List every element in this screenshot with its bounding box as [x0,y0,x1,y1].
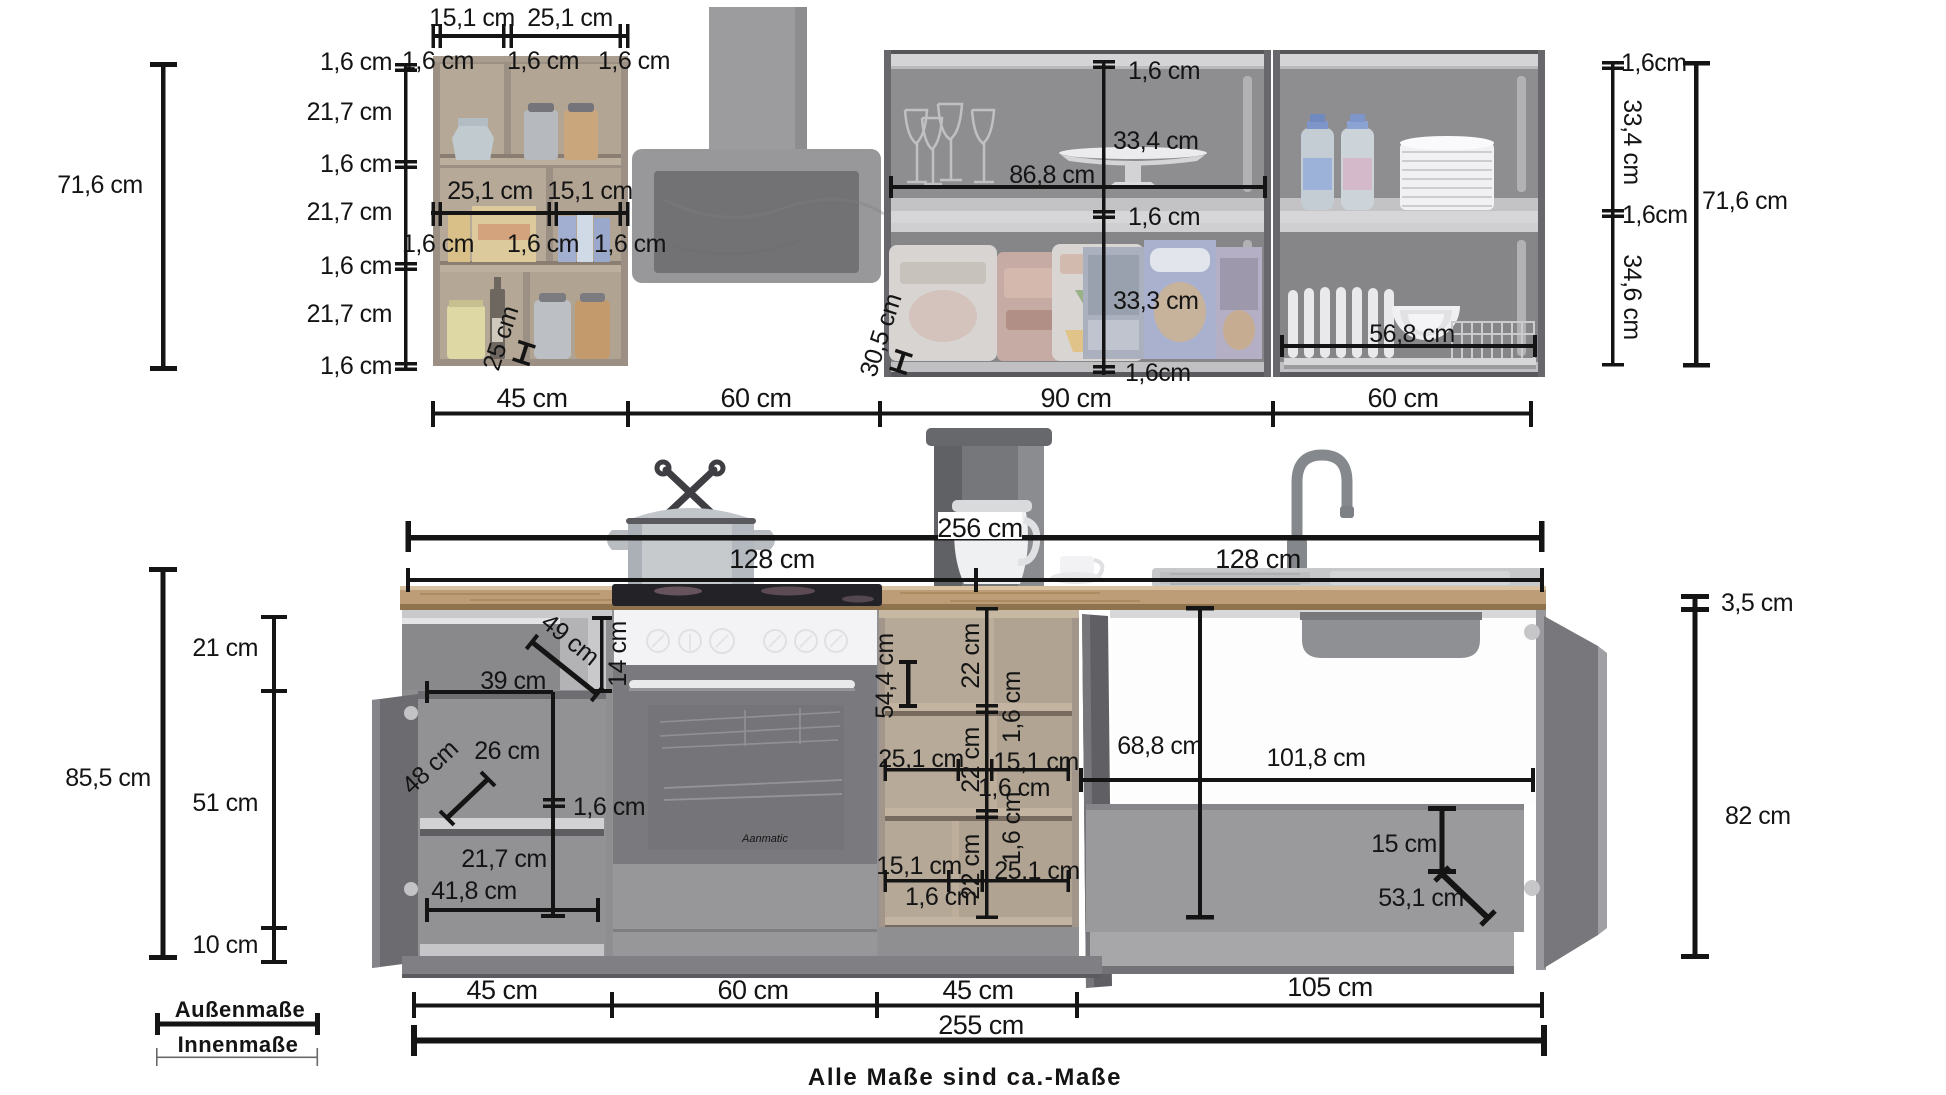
svg-text:21 cm: 21 cm [192,634,258,662]
svg-text:33,3 cm: 33,3 cm [1113,287,1198,315]
svg-text:1,6 cm: 1,6 cm [598,47,670,75]
svg-text:68,8 cm: 68,8 cm [1117,732,1202,760]
svg-text:60 cm: 60 cm [720,383,791,413]
svg-text:Alle Maße sind ca.-Maße: Alle Maße sind ca.-Maße [808,1064,1122,1091]
svg-text:60 cm: 60 cm [1367,383,1438,413]
svg-text:21,7 cm: 21,7 cm [307,300,392,328]
svg-text:1,6 cm: 1,6 cm [978,774,1050,802]
svg-text:51 cm: 51 cm [192,789,258,817]
svg-text:1,6cm: 1,6cm [1621,49,1687,77]
svg-text:34,6 cm: 34,6 cm [1618,254,1646,339]
svg-text:56,8 cm: 56,8 cm [1369,320,1454,348]
svg-text:41,8 cm: 41,8 cm [431,877,516,905]
svg-text:15,1 cm: 15,1 cm [547,177,632,205]
svg-text:1,6 cm: 1,6 cm [998,671,1026,743]
svg-text:85,5 cm: 85,5 cm [65,764,150,792]
svg-text:1,6 cm: 1,6 cm [507,230,579,258]
svg-text:86,8 cm: 86,8 cm [1009,161,1094,189]
svg-text:1,6 cm: 1,6 cm [1128,57,1200,85]
svg-text:255 cm: 255 cm [938,1010,1024,1040]
svg-text:21,7 cm: 21,7 cm [461,845,546,873]
svg-text:71,6 cm: 71,6 cm [57,171,142,199]
svg-text:1,6 cm: 1,6 cm [402,47,474,75]
svg-text:105 cm: 105 cm [1287,972,1373,1002]
svg-text:15 cm: 15 cm [1371,830,1437,858]
svg-text:10 cm: 10 cm [192,931,258,959]
svg-text:71,6 cm: 71,6 cm [1702,187,1787,215]
svg-text:54,4 cm: 54,4 cm [871,633,899,718]
svg-text:45 cm: 45 cm [496,383,567,413]
svg-text:33,4 cm: 33,4 cm [1618,99,1646,184]
svg-text:1,6cm: 1,6cm [1125,359,1191,387]
svg-text:90 cm: 90 cm [1040,383,1111,413]
svg-text:1,6 cm: 1,6 cm [507,47,579,75]
svg-text:1,6 cm: 1,6 cm [1128,203,1200,231]
svg-text:1,6 cm: 1,6 cm [573,793,645,821]
svg-text:21,7 cm: 21,7 cm [307,198,392,226]
svg-text:15,1 cm: 15,1 cm [429,4,514,32]
svg-text:1,6 cm: 1,6 cm [320,352,392,380]
svg-text:1,6 cm: 1,6 cm [594,230,666,258]
svg-text:33,4 cm: 33,4 cm [1113,127,1198,155]
svg-text:25,1 cm: 25,1 cm [527,4,612,32]
svg-text:21,7 cm: 21,7 cm [307,98,392,126]
svg-text:1,6 cm: 1,6 cm [320,150,392,178]
svg-text:45 cm: 45 cm [942,975,1013,1005]
svg-text:53,1 cm: 53,1 cm [1378,884,1463,912]
svg-text:22 cm: 22 cm [957,623,985,689]
svg-text:1,6cm: 1,6cm [1622,201,1688,229]
svg-text:26 cm: 26 cm [474,737,540,765]
svg-text:1,6 cm: 1,6 cm [402,230,474,258]
svg-text:14 cm: 14 cm [604,621,632,687]
svg-text:1,6 cm: 1,6 cm [905,883,977,911]
svg-text:1,6 cm: 1,6 cm [320,48,392,76]
svg-text:1,6 cm: 1,6 cm [998,792,1026,864]
svg-text:256 cm: 256 cm [937,513,1023,543]
svg-text:Aanmatic: Aanmatic [741,833,788,845]
svg-text:25,1 cm: 25,1 cm [447,177,532,205]
svg-text:45 cm: 45 cm [466,975,537,1005]
svg-text:15,1 cm: 15,1 cm [993,748,1078,776]
svg-text:128 cm: 128 cm [729,544,815,574]
svg-text:Innenmaße: Innenmaße [178,1032,299,1057]
svg-text:101,8 cm: 101,8 cm [1267,744,1366,772]
svg-text:60 cm: 60 cm [717,975,788,1005]
svg-text:3,5 cm: 3,5 cm [1721,589,1793,617]
svg-text:128 cm: 128 cm [1215,544,1301,574]
svg-text:Außenmaße: Außenmaße [175,997,305,1022]
svg-text:82 cm: 82 cm [1725,802,1791,830]
svg-text:1,6 cm: 1,6 cm [320,252,392,280]
